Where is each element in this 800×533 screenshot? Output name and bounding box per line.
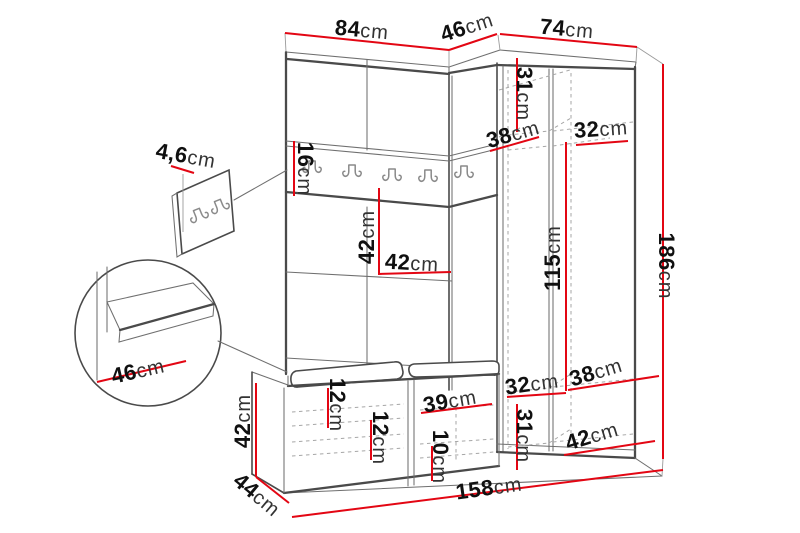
dim-label-bottom-compartment-height: 31cm — [513, 409, 535, 463]
dim-label-width-left-section: 84cm — [334, 17, 390, 44]
dim-label-bench-height: 42cm — [232, 394, 254, 448]
dimension-diagram: 84cm46cm74cm4,6cm16cm42cm42cm31cm38cm32c… — [0, 0, 800, 533]
dim-label-rail-to-shelf-height: 42cm — [356, 210, 378, 264]
wall-hook-panel-detail — [172, 170, 287, 257]
dim-label-bench-drawer-height-a: 12cm — [326, 378, 348, 432]
dim-label-rail-height: 16cm — [294, 142, 316, 196]
dim-label-width-right-section: 74cm — [539, 16, 595, 43]
dim-label-total-height: 186cm — [655, 233, 677, 300]
dim-label-shelf-width: 42cm — [384, 251, 439, 276]
dim-label-bench-compartment-height-low: 10cm — [429, 430, 451, 484]
dim-label-top-shelf-width-right: 32cm — [573, 116, 629, 142]
dim-label-hanging-space-height: 115cm — [542, 225, 564, 291]
coat-hooks — [303, 161, 473, 181]
dim-label-bench-drawer-height-b: 12cm — [369, 411, 391, 465]
dim-label-top-shelf-height: 31cm — [513, 67, 535, 121]
